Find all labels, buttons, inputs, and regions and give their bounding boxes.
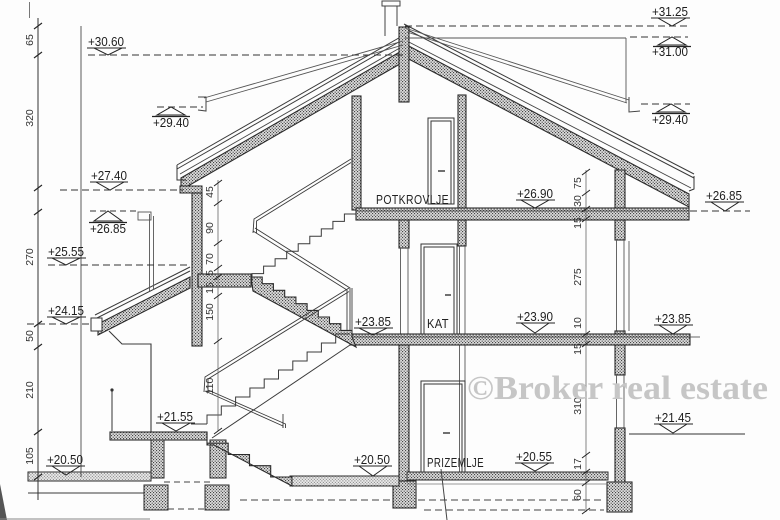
svg-text:+30.60: +30.60: [88, 35, 124, 49]
svg-text:90: 90: [204, 222, 216, 234]
svg-text:©Broker real estate: ©Broker real estate: [467, 370, 768, 407]
svg-text:210: 210: [24, 381, 36, 399]
svg-text:+29.40: +29.40: [652, 113, 688, 127]
svg-text:45: 45: [204, 186, 216, 198]
svg-text:320: 320: [24, 109, 36, 127]
svg-text:PRIZEMLJE: PRIZEMLJE: [427, 455, 484, 470]
svg-text:+29.40: +29.40: [153, 116, 189, 130]
svg-text:17: 17: [572, 458, 584, 470]
svg-text:15: 15: [572, 217, 584, 229]
svg-text:+23.90: +23.90: [517, 310, 553, 324]
svg-text:275: 275: [572, 268, 584, 286]
svg-text:+21.45: +21.45: [655, 411, 691, 425]
svg-text:POTKROVLJE: POTKROVLJE: [376, 192, 449, 207]
svg-text:10: 10: [572, 317, 584, 329]
svg-text:+24.15: +24.15: [48, 304, 84, 318]
svg-text:5: 5: [204, 270, 216, 276]
svg-text:+26.85: +26.85: [706, 189, 742, 203]
svg-text:+20.50: +20.50: [47, 453, 83, 467]
svg-text:70: 70: [204, 253, 216, 265]
svg-text:+27.40: +27.40: [91, 169, 127, 183]
svg-text:KAT: KAT: [427, 316, 449, 331]
svg-text:+26.85: +26.85: [90, 222, 126, 236]
svg-text:+25.55: +25.55: [48, 245, 84, 259]
svg-text:65: 65: [24, 34, 36, 46]
svg-text:15: 15: [572, 343, 584, 355]
svg-text:105: 105: [24, 447, 36, 465]
svg-text:110: 110: [204, 377, 216, 394]
svg-text:+26.90: +26.90: [517, 187, 553, 201]
svg-text:+23.85: +23.85: [355, 315, 391, 329]
svg-text:+31.25: +31.25: [652, 5, 688, 19]
svg-text:15: 15: [204, 282, 216, 294]
svg-text:60: 60: [572, 489, 584, 501]
svg-text:50: 50: [24, 330, 36, 342]
svg-text:+20.50: +20.50: [354, 453, 390, 467]
svg-text:30: 30: [572, 195, 584, 207]
svg-text:150: 150: [204, 303, 216, 321]
svg-text:+21.55: +21.55: [157, 410, 193, 424]
svg-text:270: 270: [24, 248, 36, 266]
svg-text:+20.55: +20.55: [516, 450, 552, 464]
svg-text:75: 75: [572, 177, 584, 189]
svg-text:+23.85: +23.85: [655, 312, 691, 326]
svg-text:+31.00: +31.00: [652, 45, 688, 59]
